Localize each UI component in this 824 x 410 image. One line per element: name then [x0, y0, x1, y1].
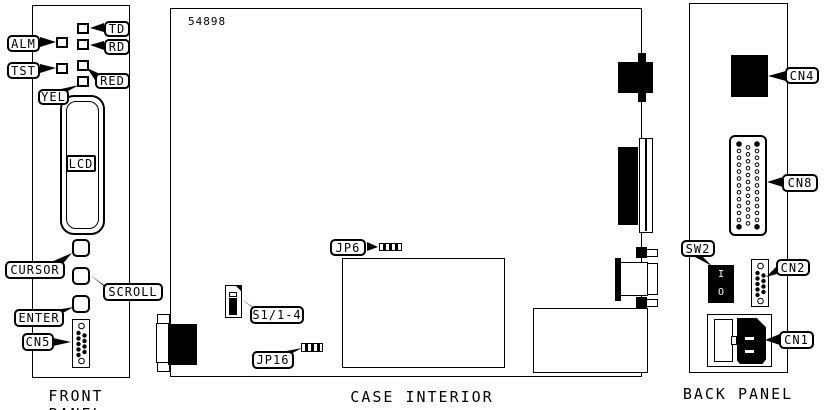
rd-leader: [90, 41, 104, 50]
jp6-callout-text: JP6: [336, 242, 361, 254]
case-interior-title: CASE INTERIOR: [297, 388, 547, 406]
cn1-leader: [765, 334, 780, 345]
enter-callout-text: ENTER: [18, 312, 59, 324]
lcd-label: LCD: [66, 155, 96, 172]
jp6-leader: [367, 242, 378, 251]
red-callout-text: RED: [100, 75, 125, 87]
cn2-callout-text: CN2: [781, 262, 806, 274]
s1-callout-text: S1/1-4: [252, 309, 301, 321]
tst-leader: [40, 64, 56, 73]
lcd-label-text: LCD: [69, 158, 94, 170]
sw2-callout: SW2: [681, 240, 715, 257]
jp6-callout: JP6: [330, 239, 366, 256]
alm-leader: [40, 37, 56, 47]
scroll-callout-text: SCROLL: [108, 286, 157, 298]
tst-callout: TST: [7, 62, 40, 79]
cn4-leader: [768, 71, 786, 81]
cn8-callout: CN8: [782, 174, 818, 192]
cn4-callout-text: CN4: [790, 70, 815, 82]
jp16-callout: JP16: [252, 351, 294, 369]
red-callout: RED: [95, 73, 130, 89]
scroll-callout: SCROLL: [103, 283, 163, 301]
s1-callout: S1/1-4: [250, 306, 304, 324]
tst-callout-text: TST: [11, 65, 36, 77]
cn4-callout: CN4: [785, 67, 819, 84]
td-callout: TD: [104, 21, 130, 37]
jp16-callout-text: JP16: [257, 354, 290, 366]
back-panel-title: BACK PANEL: [682, 385, 794, 403]
cursor-callout: CURSOR: [5, 261, 65, 279]
sw2-leader: [693, 256, 712, 266]
td-callout-text: TD: [109, 23, 125, 35]
cn8-leader: [767, 177, 783, 187]
alm-callout-text: ALM: [11, 38, 36, 50]
cn1-callout-text: CN1: [784, 334, 809, 346]
cn5-callout: CN5: [22, 333, 54, 351]
hardware-panel-diagram: LCD ALM TST TD RD RED YEL CURSOR SCROLL …: [0, 0, 824, 410]
rd-callout: RD: [104, 39, 130, 55]
yel-callout: YEL: [38, 89, 69, 105]
enter-callout: ENTER: [14, 309, 64, 327]
cursor-callout-text: CURSOR: [10, 264, 59, 276]
cn5-callout-text: CN5: [26, 336, 51, 348]
front-panel-title: FRONT PANEL: [20, 387, 132, 410]
cn5-leader: [53, 338, 71, 346]
alm-callout: ALM: [7, 35, 40, 52]
cn1-callout: CN1: [779, 331, 814, 349]
yel-callout-text: YEL: [41, 91, 66, 103]
td-leader: [90, 23, 104, 32]
cn8-callout-text: CN8: [788, 177, 813, 189]
callout-leader-lines: [0, 0, 824, 410]
cn2-callout: CN2: [776, 259, 810, 276]
rd-callout-text: RD: [109, 41, 125, 53]
sw2-callout-text: SW2: [686, 243, 711, 255]
